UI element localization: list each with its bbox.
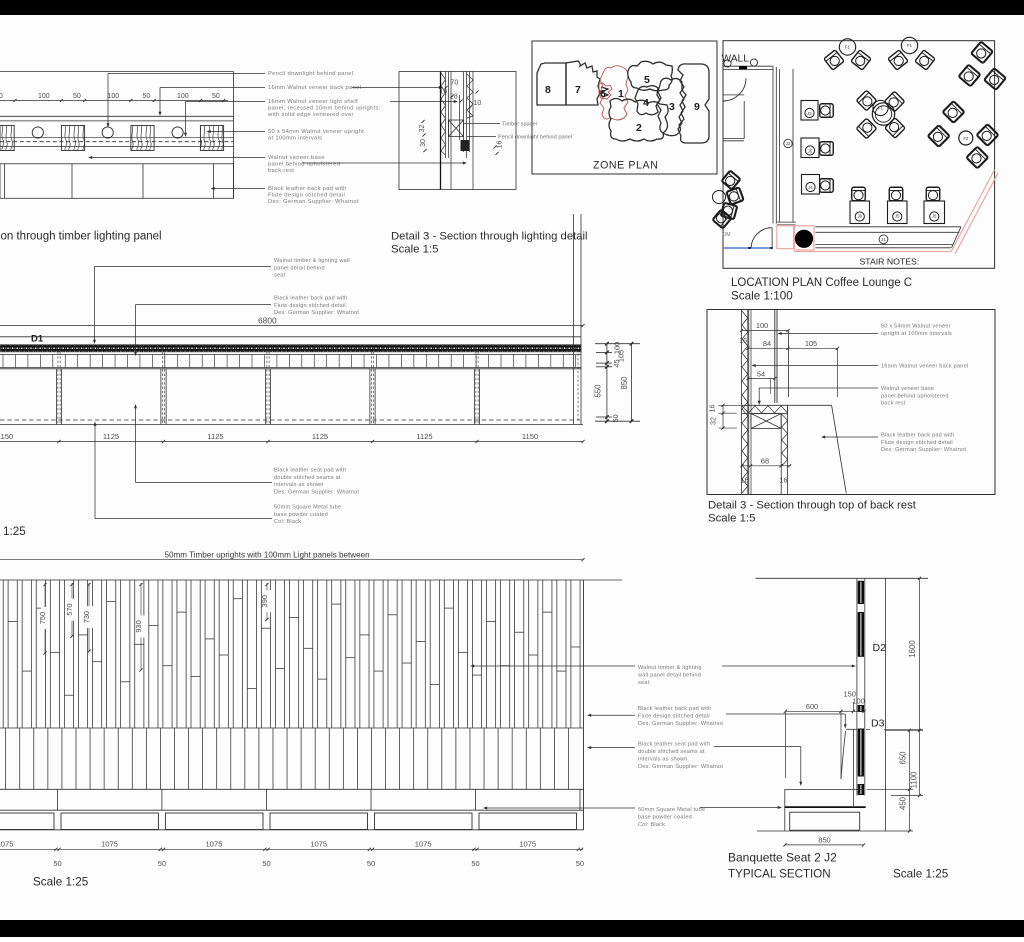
svg-text:16: 16 <box>708 405 717 413</box>
svg-text:Scale 1:5: Scale 1:5 <box>708 513 756 525</box>
svg-text:Black leather back pad with: Black leather back pad with <box>638 706 712 712</box>
svg-text:70: 70 <box>451 80 459 87</box>
svg-text:1125: 1125 <box>312 432 328 441</box>
svg-text:Detail 3 - Section through lig: Detail 3 - Section through lighting deta… <box>391 231 588 243</box>
svg-text:panel behind upholstered: panel behind upholstered <box>881 393 949 399</box>
svg-text:back rest: back rest <box>268 168 294 174</box>
svg-text:450: 450 <box>899 796 908 810</box>
svg-text:Scale 1:25: Scale 1:25 <box>0 525 26 538</box>
svg-text:16mm Walnut veneer back panel: 16mm Walnut veneer back panel <box>881 364 968 370</box>
svg-text:16: 16 <box>440 89 448 96</box>
svg-text:50: 50 <box>0 93 3 100</box>
svg-text:Black leather seat pad with: Black leather seat pad with <box>638 742 710 748</box>
svg-text:Scale 1:25: Scale 1:25 <box>33 876 89 889</box>
svg-text:1075: 1075 <box>519 840 536 849</box>
svg-text:50: 50 <box>212 93 220 100</box>
svg-text:TYPICAL SECTION: TYPICAL SECTION <box>728 868 831 881</box>
svg-text:Col: Black: Col: Black <box>274 519 301 525</box>
svg-text:on through timber lighting pan: on through timber lighting panel <box>1 231 162 243</box>
svg-text:50: 50 <box>158 859 166 868</box>
svg-text:Black leather seat pad with: Black leather seat pad with <box>274 468 346 474</box>
svg-text:panel, recessed 10mm behind up: panel, recessed 10mm behind uprights: <box>268 105 381 111</box>
svg-text:16: 16 <box>497 141 504 149</box>
svg-text:base powder coated: base powder coated <box>274 512 328 518</box>
svg-text:1150: 1150 <box>522 432 538 441</box>
svg-text:base powder coated: base powder coated <box>638 815 692 821</box>
svg-text:Black leather back pad with: Black leather back pad with <box>881 433 955 439</box>
svg-text:ZONE PLAN: ZONE PLAN <box>593 160 658 172</box>
svg-text:84: 84 <box>763 339 771 348</box>
svg-text:F1: F1 <box>907 43 913 48</box>
svg-text:Black leather back pad with: Black leather back pad with <box>274 296 348 302</box>
svg-text:650: 650 <box>899 751 908 765</box>
svg-text:5: 5 <box>644 74 650 86</box>
svg-text:750: 750 <box>38 612 47 624</box>
svg-text:Banquette Seat 2 J2: Banquette Seat 2 J2 <box>728 851 837 865</box>
svg-text:32: 32 <box>709 417 718 425</box>
svg-text:68: 68 <box>761 456 769 465</box>
svg-text:1125: 1125 <box>416 432 432 441</box>
svg-text:930: 930 <box>134 620 143 632</box>
svg-text:Scale 1:100: Scale 1:100 <box>731 290 793 303</box>
svg-text:9: 9 <box>694 101 700 113</box>
svg-text:F1: F1 <box>878 106 884 111</box>
svg-text:50: 50 <box>143 93 151 100</box>
svg-text:Pencil downlight behind panel: Pencil downlight behind panel <box>268 71 353 77</box>
svg-text:50: 50 <box>262 859 270 868</box>
svg-text:with solid edge veneered over: with solid edge veneered over <box>267 112 354 118</box>
svg-text:1075: 1075 <box>310 840 327 849</box>
svg-text:panel behind upholstered: panel behind upholstered <box>268 161 340 167</box>
svg-text:50: 50 <box>367 859 375 868</box>
svg-text:4: 4 <box>643 97 649 109</box>
svg-text:50: 50 <box>73 93 81 100</box>
svg-text:50 x 54mm Walnut veneer: 50 x 54mm Walnut veneer <box>881 324 951 330</box>
svg-text:54: 54 <box>757 369 765 378</box>
svg-text:1075: 1075 <box>101 840 118 849</box>
svg-text:Walnut timber & lighting: Walnut timber & lighting <box>638 665 702 671</box>
svg-text:Des: German Supplier: Whatnot: Des: German Supplier: Whatnot <box>881 447 966 453</box>
svg-text:105: 105 <box>805 339 817 348</box>
svg-text:Detail 3 - Section through top: Detail 3 - Section through top of back r… <box>708 500 917 512</box>
svg-text:intervals as shown: intervals as shown <box>638 757 688 763</box>
svg-text:30: 30 <box>420 139 427 147</box>
svg-text:J4: J4 <box>808 185 813 190</box>
svg-text:D1: D1 <box>31 334 44 345</box>
svg-text:550: 550 <box>594 384 603 398</box>
svg-text:Walnut veneer base: Walnut veneer base <box>268 155 325 161</box>
svg-text:16: 16 <box>741 476 749 485</box>
svg-text:45: 45 <box>612 359 621 367</box>
svg-text:8: 8 <box>545 84 551 96</box>
svg-text:seat: seat <box>638 680 650 686</box>
svg-text:6: 6 <box>600 88 606 100</box>
svg-text:100: 100 <box>177 93 189 100</box>
svg-text:Flute design stitched detail: Flute design stitched detail <box>274 303 346 309</box>
svg-text:F2: F2 <box>963 136 969 141</box>
svg-text:50: 50 <box>471 859 479 868</box>
svg-text:Des: German Supplier: Whatnot: Des: German Supplier: Whatnot <box>638 721 723 727</box>
svg-text:100: 100 <box>853 697 865 706</box>
svg-text:600: 600 <box>806 702 818 711</box>
svg-text:100: 100 <box>38 93 50 100</box>
svg-text:570: 570 <box>65 603 74 615</box>
svg-text:WALL: WALL <box>722 54 750 65</box>
svg-text:Pencil downlight behind panel: Pencil downlight behind panel <box>498 135 572 141</box>
svg-text:850: 850 <box>620 376 629 390</box>
svg-text:1100: 1100 <box>910 771 919 788</box>
svg-text:100: 100 <box>108 93 120 100</box>
svg-text:J3: J3 <box>807 111 812 116</box>
svg-text:16: 16 <box>780 476 788 485</box>
svg-text:50mm Square Metal tube: 50mm Square Metal tube <box>638 807 705 813</box>
svg-text:16: 16 <box>739 336 747 345</box>
svg-text:50 x 54mm Walnut veneer uprigh: 50 x 54mm Walnut veneer upright <box>268 129 364 135</box>
svg-text:Col: Black: Col: Black <box>638 822 665 828</box>
svg-text:Flute design stitched detail: Flute design stitched detail <box>881 440 953 446</box>
svg-text:J1: J1 <box>881 237 886 242</box>
svg-text:Flute design stitched detail: Flute design stitched detail <box>638 714 710 720</box>
svg-text:1: 1 <box>618 88 624 100</box>
svg-text:50: 50 <box>53 859 61 868</box>
svg-text:J2: J2 <box>786 141 791 146</box>
svg-text:J5: J5 <box>932 214 937 219</box>
svg-text:Walnut veneer base: Walnut veneer base <box>881 386 934 392</box>
svg-text:F1: F1 <box>845 45 851 50</box>
svg-text:50mm Timber uprights with 100m: 50mm Timber uprights with 100mm Light pa… <box>165 551 370 560</box>
svg-text:J6: J6 <box>857 214 862 219</box>
svg-text:6800: 6800 <box>258 316 277 326</box>
svg-text:back rest: back rest <box>881 401 906 407</box>
svg-text:upright at 100mm intervals: upright at 100mm intervals <box>881 331 952 337</box>
svg-text:LOCATION PLAN Coffee Lounge C: LOCATION PLAN Coffee Lounge C <box>731 277 912 289</box>
svg-text:16mm Walnut veneer light shelf: 16mm Walnut veneer light shelf <box>268 99 358 105</box>
svg-text:Des: German Supplier: Whatnot: Des: German Supplier: Whatnot <box>274 489 359 495</box>
svg-text:OM: OM <box>723 232 731 238</box>
svg-text:Black leather back pad with: Black leather back pad with <box>268 186 347 192</box>
svg-text:Scale 1:25: Scale 1:25 <box>893 868 949 881</box>
svg-text:at 100mm intervals: at 100mm intervals <box>268 135 322 141</box>
svg-text:50: 50 <box>576 859 584 868</box>
svg-text:100: 100 <box>756 321 768 330</box>
svg-text:850: 850 <box>818 836 830 845</box>
svg-text:double stitched seams at: double stitched seams at <box>638 749 705 755</box>
svg-text:1150: 1150 <box>0 432 13 441</box>
svg-text:intervals as shown: intervals as shown <box>274 482 324 488</box>
svg-text:Scale 1:5: Scale 1:5 <box>391 244 439 256</box>
svg-text:390: 390 <box>260 595 269 607</box>
svg-text:wall panel detail behind: wall panel detail behind <box>637 673 701 679</box>
svg-text:double stitched seams at: double stitched seams at <box>274 475 341 481</box>
svg-text:2: 2 <box>636 122 642 134</box>
svg-text:7: 7 <box>575 84 581 96</box>
svg-text:D3: D3 <box>871 718 885 730</box>
svg-text:Des: German Supplier: Whatnot: Des: German Supplier: Whatnot <box>268 199 359 205</box>
svg-text:seat: seat <box>274 273 286 279</box>
svg-text:STAIR NOTES:: STAIR NOTES: <box>860 257 920 267</box>
svg-text:3: 3 <box>669 101 675 113</box>
svg-text:D2: D2 <box>873 642 887 654</box>
svg-text:Des: German Supplier: Whatnot: Des: German Supplier: Whatnot <box>274 310 359 316</box>
svg-text:1075: 1075 <box>0 840 13 849</box>
svg-text:Flute design stitched detail: Flute design stitched detail <box>268 192 345 198</box>
svg-text:Des: German Supplier: Whatnot: Des: German Supplier: Whatnot <box>638 764 723 770</box>
svg-text:1600: 1600 <box>908 640 917 658</box>
svg-text:730: 730 <box>82 611 91 623</box>
svg-text:1075: 1075 <box>206 840 223 849</box>
svg-text:J5: J5 <box>808 149 813 154</box>
svg-text:50: 50 <box>611 414 620 422</box>
svg-text:16mm Walnut veneer back panel: 16mm Walnut veneer back panel <box>268 85 361 91</box>
svg-text:1125: 1125 <box>103 432 119 441</box>
svg-text:panel detail behind: panel detail behind <box>274 265 325 271</box>
svg-text:50mm Square Metal tube: 50mm Square Metal tube <box>274 505 341 511</box>
svg-text:J5: J5 <box>895 214 900 219</box>
svg-text:1125: 1125 <box>207 432 223 441</box>
svg-text:10: 10 <box>474 100 482 107</box>
svg-text:Walnut timber & lighting wall: Walnut timber & lighting wall <box>274 258 350 264</box>
svg-text:1075: 1075 <box>415 840 432 849</box>
svg-text:32: 32 <box>419 125 426 133</box>
